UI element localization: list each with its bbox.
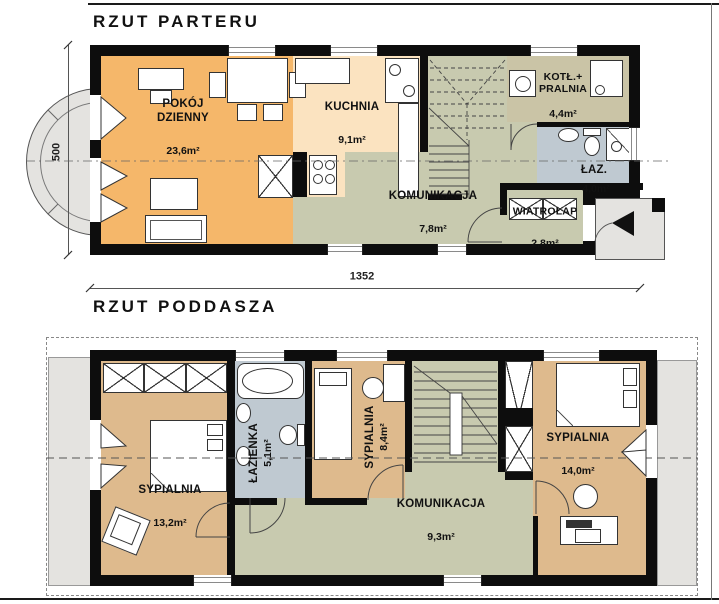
frame-right-line: [711, 3, 712, 600]
desk: [383, 364, 405, 402]
desk: [560, 516, 618, 545]
room-label-bathroom-attic: ŁAZIENKA 5,1m²: [248, 423, 274, 483]
boiler: [590, 60, 623, 97]
terrace-door-opening: [90, 95, 101, 140]
washing-machine: [509, 70, 536, 97]
window: [443, 575, 482, 586]
wall-bedroom3-left-stub: [533, 516, 538, 575]
chair: [263, 104, 283, 121]
window: [629, 127, 640, 161]
dining-table: [227, 58, 288, 103]
room-label-hall-ground: KOMUNIKACJA 7,8m²: [389, 171, 477, 255]
balcony-door-opening: [90, 420, 101, 490]
room-label-kitchen: KUCHNIA 9,1m²: [325, 82, 379, 166]
wall-kitchen-stairs: [420, 56, 428, 152]
wardrobe: [505, 426, 533, 472]
window: [530, 45, 578, 56]
wall-living-hall-stub: [293, 152, 307, 197]
toilet: [279, 422, 305, 448]
terrace-door-opening: [90, 158, 101, 222]
wall-bedroom2-hall: [312, 498, 367, 505]
coffee-table: [150, 178, 198, 210]
window: [327, 244, 363, 255]
room-label-bedroom3: SYPIALNIA 14,0m²: [546, 413, 609, 497]
wardrobe: [103, 363, 227, 393]
wall-wardrobe-bottom-stub: [505, 472, 533, 480]
tv-cabinet: [258, 155, 293, 198]
desk-chair: [362, 377, 384, 399]
chair: [209, 72, 226, 98]
depth-dimension-value: 500: [50, 143, 63, 161]
ground-floor-title: RZUT PARTERU: [93, 12, 260, 32]
width-dimension-line: [90, 288, 640, 289]
wall-bath-hall: [235, 498, 277, 505]
window: [543, 350, 600, 361]
wall-stairs-wardrobe: [498, 361, 505, 472]
single-bed: [314, 368, 352, 460]
room-label-bedroom2: SYPIALNIA 8,4m²: [364, 405, 390, 468]
room-label-hall-attic: KOMUNIKACJA 9,3m²: [397, 479, 485, 563]
balcony-door-opening: [646, 425, 657, 478]
attic-floor-title: RZUT PODDASZA: [93, 297, 277, 317]
stairs-attic-area: [412, 361, 498, 472]
porch-post: [652, 198, 665, 212]
entrance-door-opening: [583, 205, 595, 241]
window: [193, 575, 232, 586]
frame-top-line: [88, 3, 719, 5]
window: [235, 350, 285, 361]
kitchen-corner-sink: [385, 58, 419, 103]
room-label-living: POKÓJ DZIENNY 23,6m²: [157, 79, 209, 177]
room-label-bathroom-ground: ŁAZ. 4,0m²: [578, 140, 609, 198]
room-label-bedroom1: SYPIALNIA 13,2m²: [138, 465, 201, 549]
window: [228, 45, 276, 56]
depth-dimension-line: [68, 45, 69, 255]
window: [336, 350, 388, 361]
bathtub: [237, 363, 304, 399]
width-dimension-value: 1352: [350, 270, 374, 283]
wall-bedroom1-hall-stub: [227, 538, 235, 575]
washbasin: [236, 403, 251, 423]
wardrobe-divider: [505, 408, 533, 426]
wall-bedroom2-stairs: [405, 361, 412, 472]
wall-hall-vestibule-stub: [500, 183, 507, 215]
kitchen-counter: [295, 58, 350, 84]
room-label-boiler-laundry: KOTŁ.+ PRALNIA 4,4m²: [539, 58, 587, 134]
wall-bedroom1-bath: [227, 361, 235, 498]
frame-bottom-line: [0, 598, 719, 600]
room-label-vestibule: WIATROŁAP 2,8m²: [513, 187, 578, 270]
sofa: [145, 215, 207, 243]
chair: [237, 104, 257, 121]
floor-plan-drawing: RZUT PARTERU RZUT PODDASZA 500 1352: [0, 0, 719, 604]
window: [330, 45, 378, 56]
roof-strip-right: [657, 360, 697, 586]
wall-bath-bedroom2: [305, 361, 312, 505]
